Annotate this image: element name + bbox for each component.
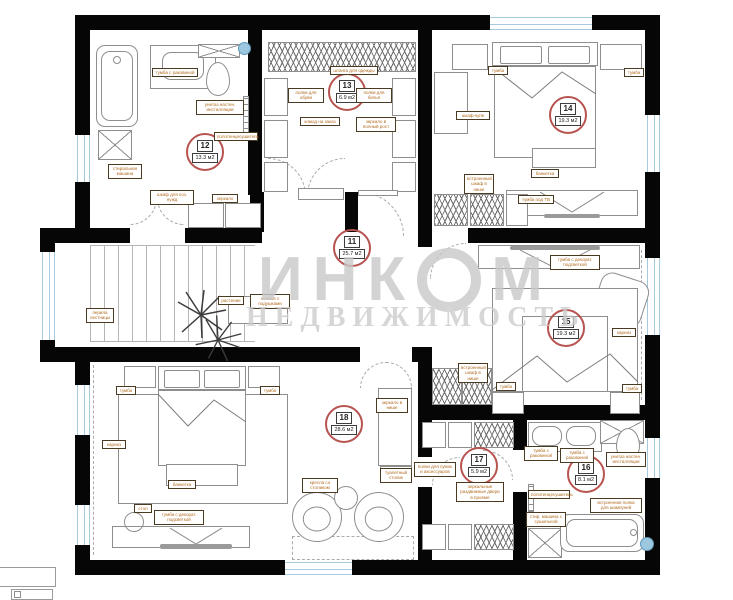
pillow bbox=[548, 46, 590, 64]
label-tv-console: тумба с декорат. подсветкой bbox=[154, 510, 204, 525]
washing-machine bbox=[98, 130, 132, 160]
wall bbox=[75, 362, 90, 385]
plant-icon bbox=[192, 314, 244, 366]
built-in-closet bbox=[470, 194, 504, 226]
closet-section bbox=[422, 422, 446, 448]
bench bbox=[532, 148, 596, 168]
floor-plan: 11 25.7 м2 12 13.3 м2 13 6.9 м2 14 19.3 … bbox=[0, 0, 733, 600]
label-plant: растение bbox=[218, 296, 244, 305]
wall bbox=[412, 347, 432, 362]
sink-basin bbox=[566, 426, 596, 446]
label-bath-shelf: встроенная полка для шампуней bbox=[590, 498, 642, 513]
label-nightstand: тумба bbox=[622, 384, 642, 393]
mirror bbox=[358, 190, 398, 196]
closet-section bbox=[422, 524, 446, 550]
wall bbox=[40, 228, 55, 252]
label-bench: банкетка bbox=[531, 169, 559, 178]
label-dressing-table: туалетный столик bbox=[380, 468, 412, 483]
label-nightstand: тумба bbox=[488, 66, 508, 75]
label-towel-rail: полотенцесушитель bbox=[214, 132, 258, 141]
label-nightstand: тумба bbox=[624, 68, 644, 77]
wall bbox=[418, 15, 432, 195]
wall bbox=[75, 15, 90, 135]
storage-cabinet bbox=[198, 44, 240, 58]
room-number: 12 bbox=[197, 140, 214, 152]
room-badge-16: 16 8.1 м2 bbox=[564, 462, 608, 485]
label-linen-shelves: полки для белья bbox=[356, 88, 392, 103]
closet-section bbox=[448, 422, 472, 448]
room-number: 15 bbox=[558, 316, 575, 328]
legend-box bbox=[0, 567, 56, 587]
pillow bbox=[204, 370, 240, 388]
label-toilet: унитаз настен. инсталляции bbox=[606, 452, 646, 467]
label-washer: стир. машина с сушильной bbox=[526, 512, 566, 527]
room-number: 13 bbox=[339, 80, 356, 92]
label-hall-bench: скамья с подушками bbox=[250, 294, 290, 309]
label-cornice: карниз bbox=[102, 440, 126, 449]
label-niche-closet: встроенный шкаф в нише bbox=[464, 174, 494, 194]
label-vanity: тумба с раковиной bbox=[524, 446, 558, 461]
nightstand bbox=[452, 44, 488, 70]
label-nightstand: тумба bbox=[260, 386, 280, 395]
room-area: 19.3 м2 bbox=[553, 329, 578, 339]
sink-basin bbox=[532, 426, 562, 446]
hanging-rail bbox=[474, 524, 514, 550]
tv-screen bbox=[544, 214, 600, 218]
label-tv-console: тумба под ТВ bbox=[518, 195, 554, 204]
door-arc bbox=[386, 362, 412, 388]
label-vanity: тумба с раковиной bbox=[152, 68, 198, 77]
room-number: 18 bbox=[336, 412, 353, 424]
label-vanity: тумба с раковиной bbox=[560, 448, 594, 463]
door-arc bbox=[430, 243, 466, 279]
toilet bbox=[206, 62, 230, 96]
label-storage: шкаф для хоз. нужд bbox=[150, 190, 194, 205]
label-toilet: унитаз настен. инсталляции bbox=[196, 100, 244, 115]
room-badge-14: 14 19.3 м2 bbox=[546, 103, 590, 126]
wall bbox=[248, 15, 262, 195]
room-badge-18: 18 28.6 м2 bbox=[322, 412, 366, 435]
room-area: 6.9 м2 bbox=[336, 93, 358, 103]
laundry-basket bbox=[640, 537, 654, 551]
label-stair-rail: перила лестницы bbox=[86, 308, 114, 323]
wall bbox=[75, 435, 90, 505]
label-cornice: карниз bbox=[612, 328, 636, 337]
shelf-unit bbox=[392, 78, 416, 116]
room-badge-11: 11 25.7 м2 bbox=[330, 236, 374, 259]
wall bbox=[468, 228, 645, 243]
room-badge-15: 15 19.3 м2 bbox=[544, 316, 588, 339]
nightstand bbox=[124, 366, 156, 388]
room-area: 28.6 м2 bbox=[331, 425, 356, 435]
shelf-unit bbox=[392, 162, 416, 192]
label-closet-shelves: полки для сумок и аксессуаров bbox=[414, 462, 456, 477]
label-niche-closet: встроенный шкаф в нише bbox=[458, 363, 488, 383]
tv-screen bbox=[160, 544, 232, 549]
label-bench: банкетка bbox=[168, 480, 196, 489]
window bbox=[647, 258, 660, 335]
label-armchairs: кресла со столиком bbox=[302, 478, 338, 493]
room-number: 16 bbox=[578, 462, 595, 474]
wall bbox=[645, 335, 660, 438]
pillow bbox=[164, 370, 200, 388]
wall bbox=[645, 478, 660, 575]
wall bbox=[513, 492, 527, 575]
window bbox=[42, 252, 55, 340]
window bbox=[77, 385, 90, 435]
room-area: 25.7 м2 bbox=[339, 249, 364, 259]
wardrobe bbox=[434, 72, 468, 134]
bathtub-drain bbox=[113, 56, 121, 64]
label-rod: штанга для одежды bbox=[330, 66, 378, 75]
washing-machine bbox=[528, 528, 562, 558]
label-shoe-shelves: полки для обуви bbox=[288, 88, 324, 103]
closet-section bbox=[448, 524, 472, 550]
room-number: 11 bbox=[344, 236, 360, 248]
window bbox=[77, 505, 90, 545]
blanket-fold bbox=[158, 392, 246, 428]
label-closet-doors: зеркальные раздвижные двери в проеме bbox=[456, 482, 504, 502]
room-badge-17: 17 5.9 м2 bbox=[457, 454, 501, 477]
bathtub-inner bbox=[566, 519, 638, 547]
label-mirror: зеркало bbox=[212, 194, 238, 203]
label-tv-console: тумба с декорат. подсветкой bbox=[550, 255, 600, 270]
label-nightstand: тумба bbox=[496, 382, 516, 391]
room-area: 8.1 м2 bbox=[575, 475, 597, 485]
window bbox=[647, 115, 660, 172]
built-in-closet bbox=[434, 194, 468, 226]
room-area: 19.3 м2 bbox=[555, 116, 580, 126]
curtain-line bbox=[641, 250, 642, 400]
door-arc bbox=[360, 362, 386, 388]
door-arc bbox=[360, 192, 404, 236]
wall bbox=[75, 560, 285, 575]
label-tall-mirror: зеркало в полный рост bbox=[356, 117, 396, 132]
room-area: 5.9 м2 bbox=[468, 467, 490, 477]
tv-screen bbox=[510, 246, 600, 250]
legend-swatch bbox=[14, 591, 21, 598]
wall bbox=[352, 560, 660, 575]
curtain-line bbox=[93, 365, 94, 555]
label-nightstand: тумба bbox=[116, 386, 136, 395]
window bbox=[77, 135, 90, 182]
nightstand bbox=[248, 366, 280, 388]
nightstand bbox=[610, 392, 640, 414]
hanging-rail bbox=[474, 422, 514, 448]
blanket-fold bbox=[494, 66, 596, 102]
pillow bbox=[500, 46, 542, 64]
label-washer: стиральная машина bbox=[108, 164, 142, 179]
shelf-unit bbox=[264, 162, 288, 192]
wall bbox=[345, 192, 358, 232]
window bbox=[285, 562, 352, 575]
nightstand bbox=[492, 392, 524, 414]
room-number: 14 bbox=[560, 103, 577, 115]
bathtub-faucet bbox=[630, 529, 637, 536]
wall bbox=[645, 15, 660, 115]
room-number: 17 bbox=[471, 454, 488, 466]
round-armchair bbox=[354, 492, 404, 542]
label-towel-rail: полотенцесушитель bbox=[528, 490, 570, 499]
room-badge-12: 12 13.3 м2 bbox=[183, 140, 227, 163]
label-commode: комод на заказ bbox=[300, 117, 340, 126]
wall bbox=[645, 172, 660, 258]
room-area: 13.3 м2 bbox=[192, 153, 217, 163]
nightstand bbox=[600, 44, 642, 70]
window bbox=[490, 17, 592, 30]
label-wardrobe: шкаф-купе bbox=[456, 111, 490, 120]
storage-box bbox=[225, 203, 261, 228]
shelf-unit bbox=[264, 78, 288, 116]
storage-box bbox=[188, 203, 224, 228]
label-table: стол bbox=[134, 504, 152, 513]
window bbox=[647, 438, 660, 478]
wall bbox=[418, 192, 432, 247]
label-niche-mirror: зеркало в нише bbox=[376, 398, 408, 413]
shelf-unit bbox=[264, 120, 288, 158]
floor-drain-icon bbox=[238, 42, 251, 55]
commode bbox=[298, 188, 344, 200]
